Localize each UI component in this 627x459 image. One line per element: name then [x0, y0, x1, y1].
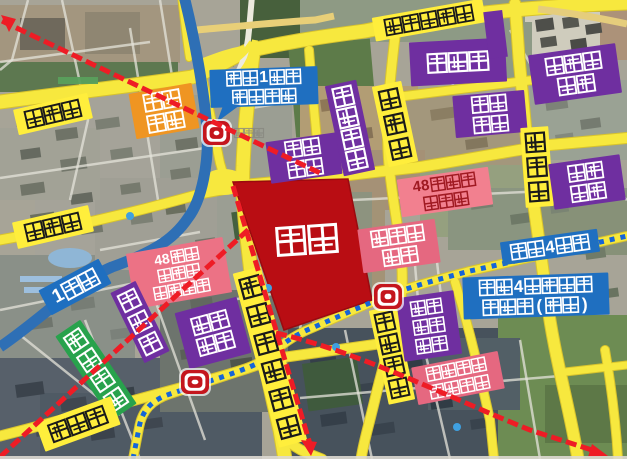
svg-text:(: (: [536, 296, 543, 315]
svg-text:4: 4: [513, 277, 524, 296]
svg-text:48: 48: [153, 250, 171, 268]
svg-text:1: 1: [259, 69, 269, 86]
svg-text:): ): [582, 295, 588, 314]
svg-text:48: 48: [412, 177, 431, 196]
